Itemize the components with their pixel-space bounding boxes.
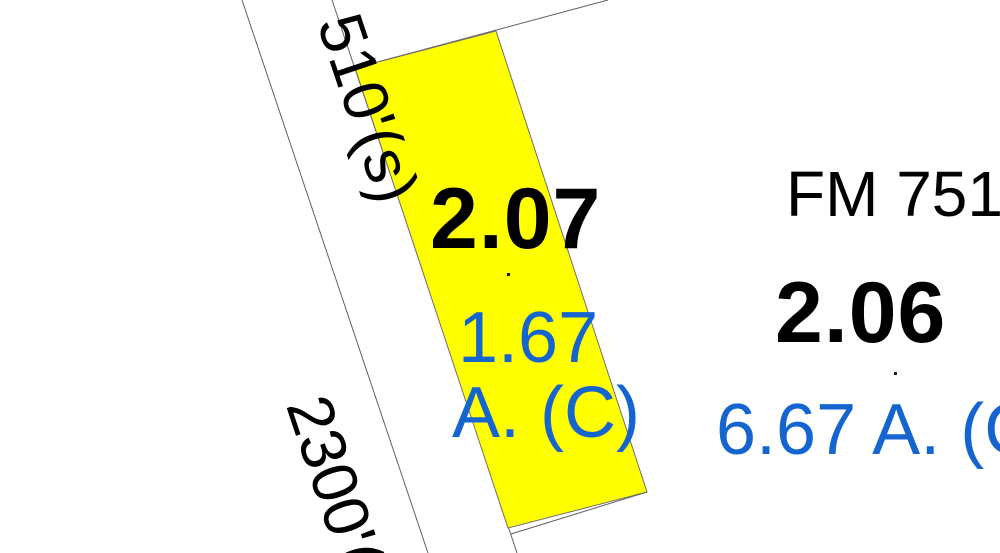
parcel-207-acreage-line2: A. (C): [452, 377, 640, 449]
parcel-map-canvas: 510'(s) 2300'( 2.07 1.67 A. (C) FM 751 2…: [0, 0, 1000, 553]
parcel-206-acreage-label: 6.67 A. (C: [716, 394, 1000, 466]
parcel-207-acreage-line1: 1.67: [458, 302, 598, 374]
road-name-label: FM 751: [786, 162, 1000, 226]
parcel-207-id-label: 2.07: [430, 176, 601, 262]
point-marker-parcel-206: [894, 372, 897, 375]
point-marker-parcel-207: [507, 273, 510, 276]
parcel-206-id-label: 2.06: [775, 270, 946, 356]
